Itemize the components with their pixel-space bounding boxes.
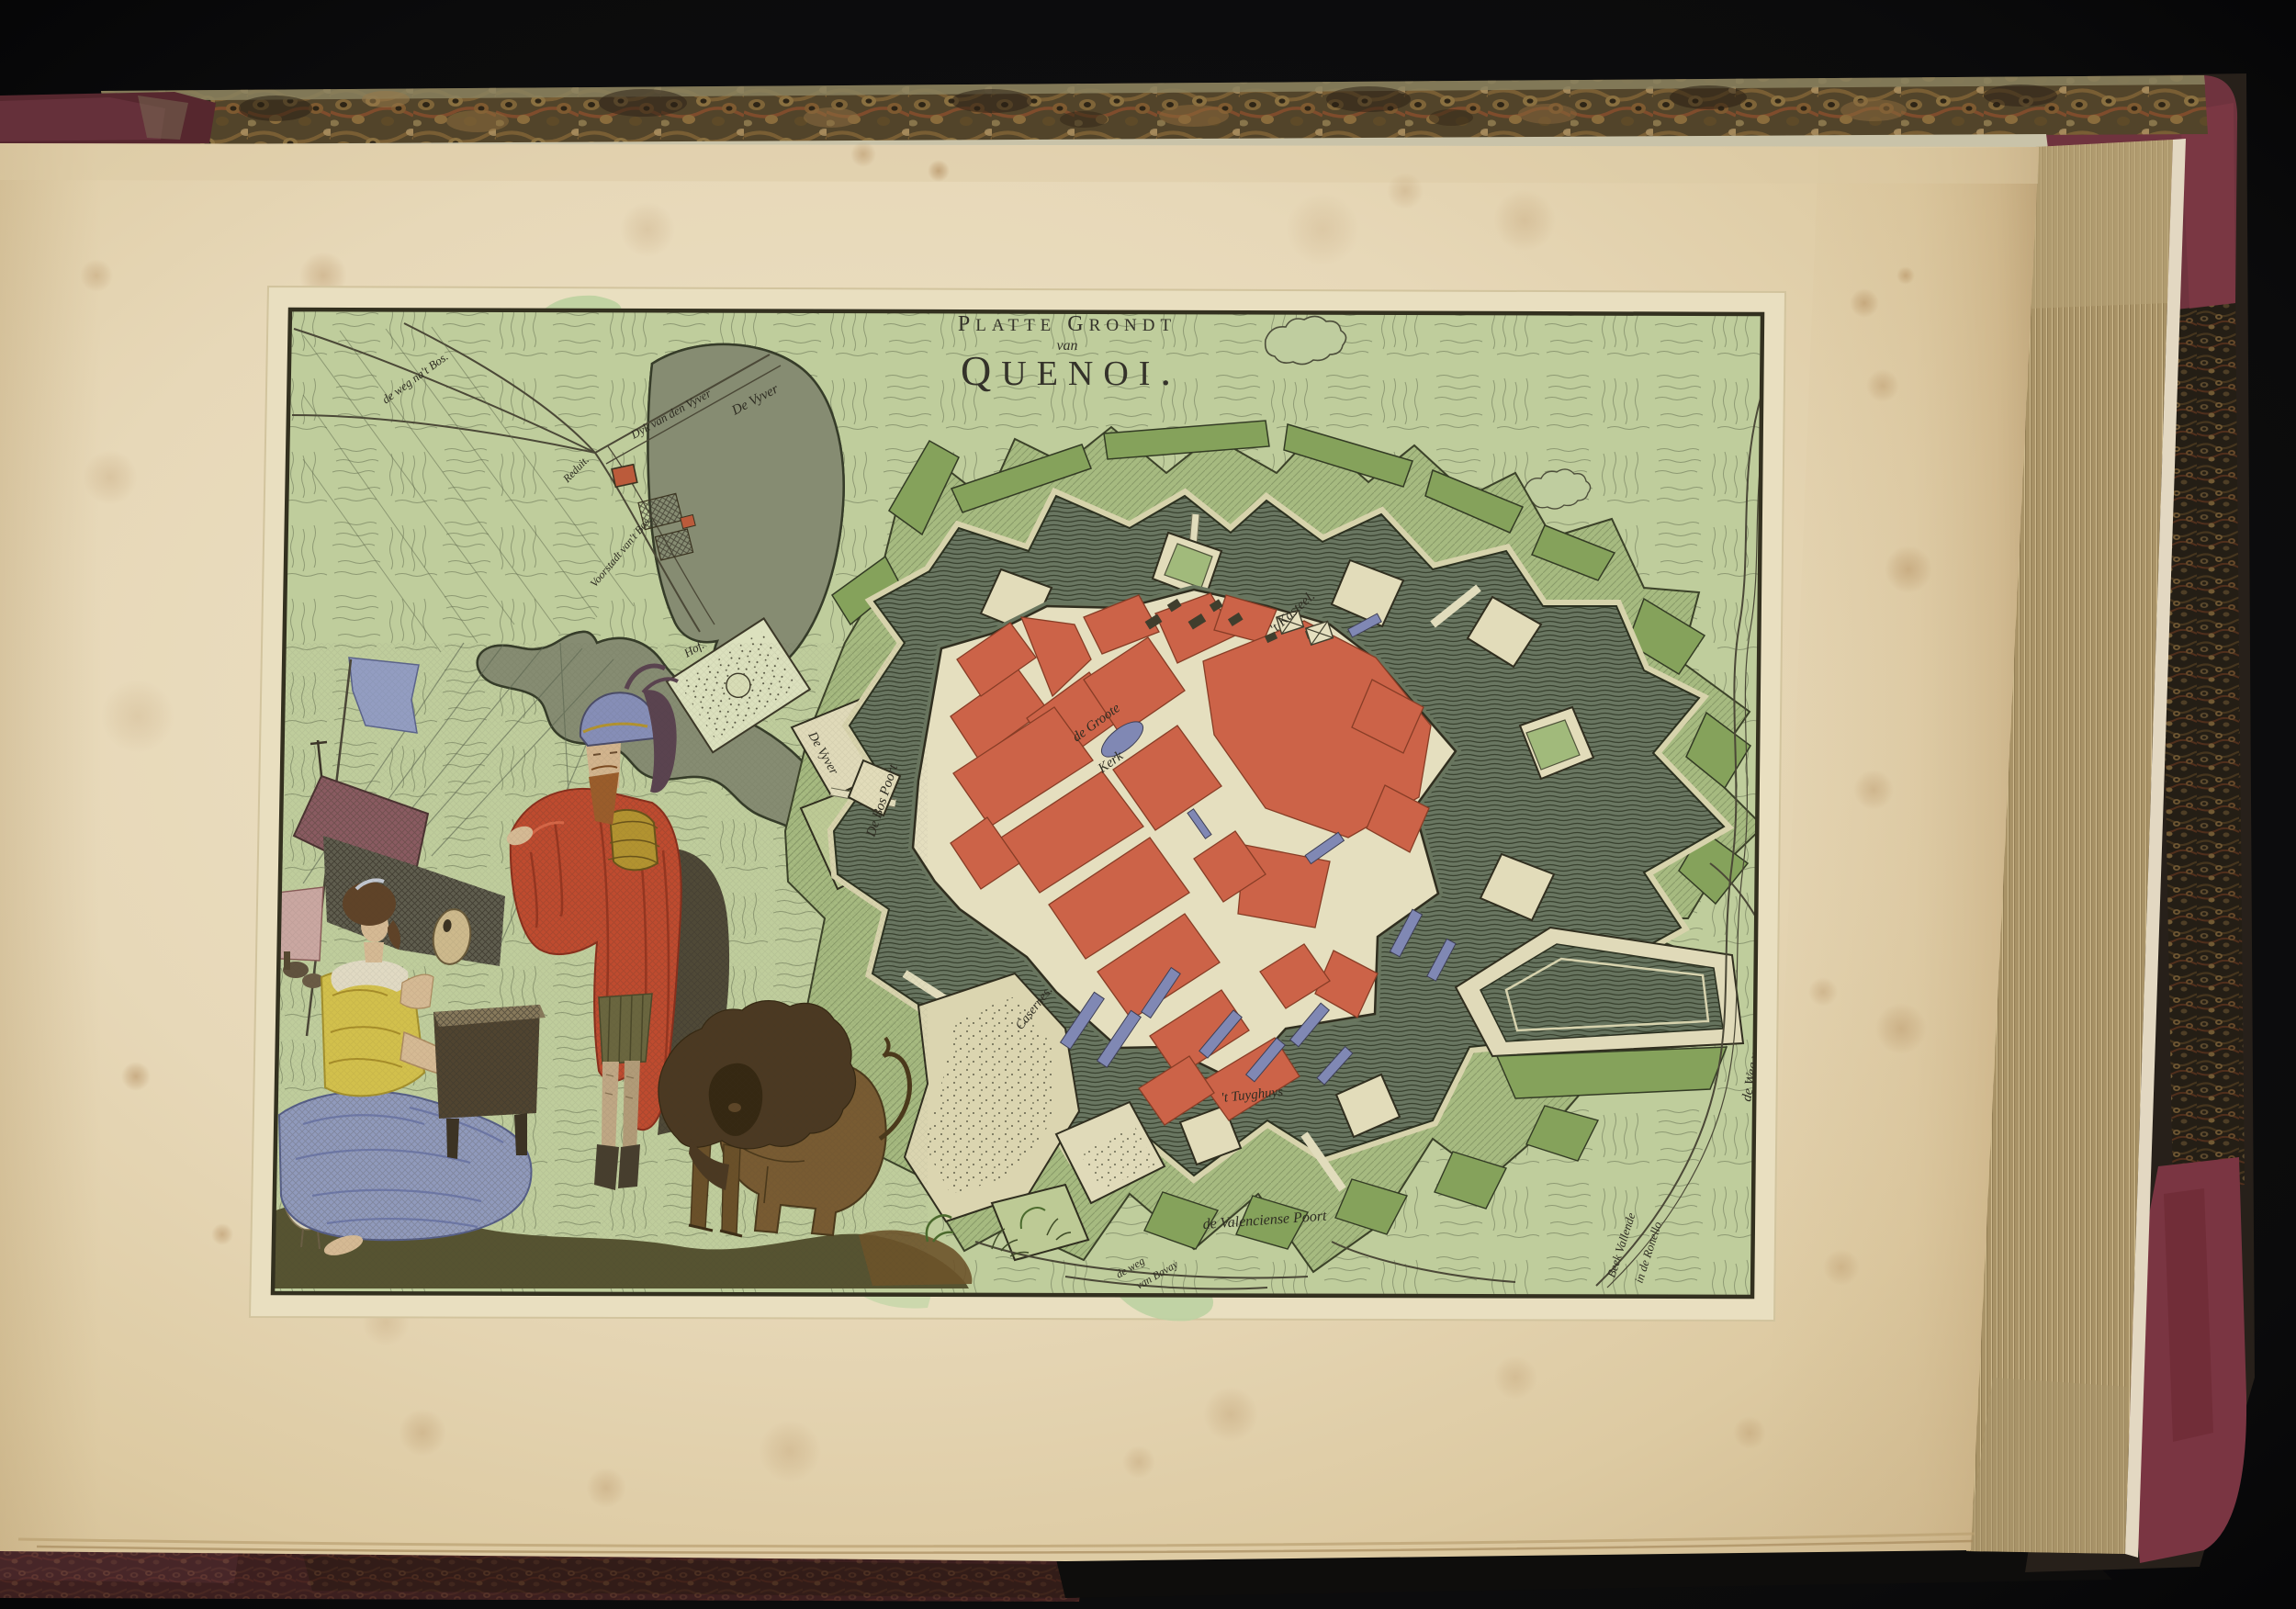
svg-text:QUENOI.: QUENOI. — [961, 347, 1181, 394]
svg-text:van: van — [1056, 338, 1077, 354]
svg-text:PLATTE GRONDT: PLATTE GRONDT — [958, 312, 1176, 336]
